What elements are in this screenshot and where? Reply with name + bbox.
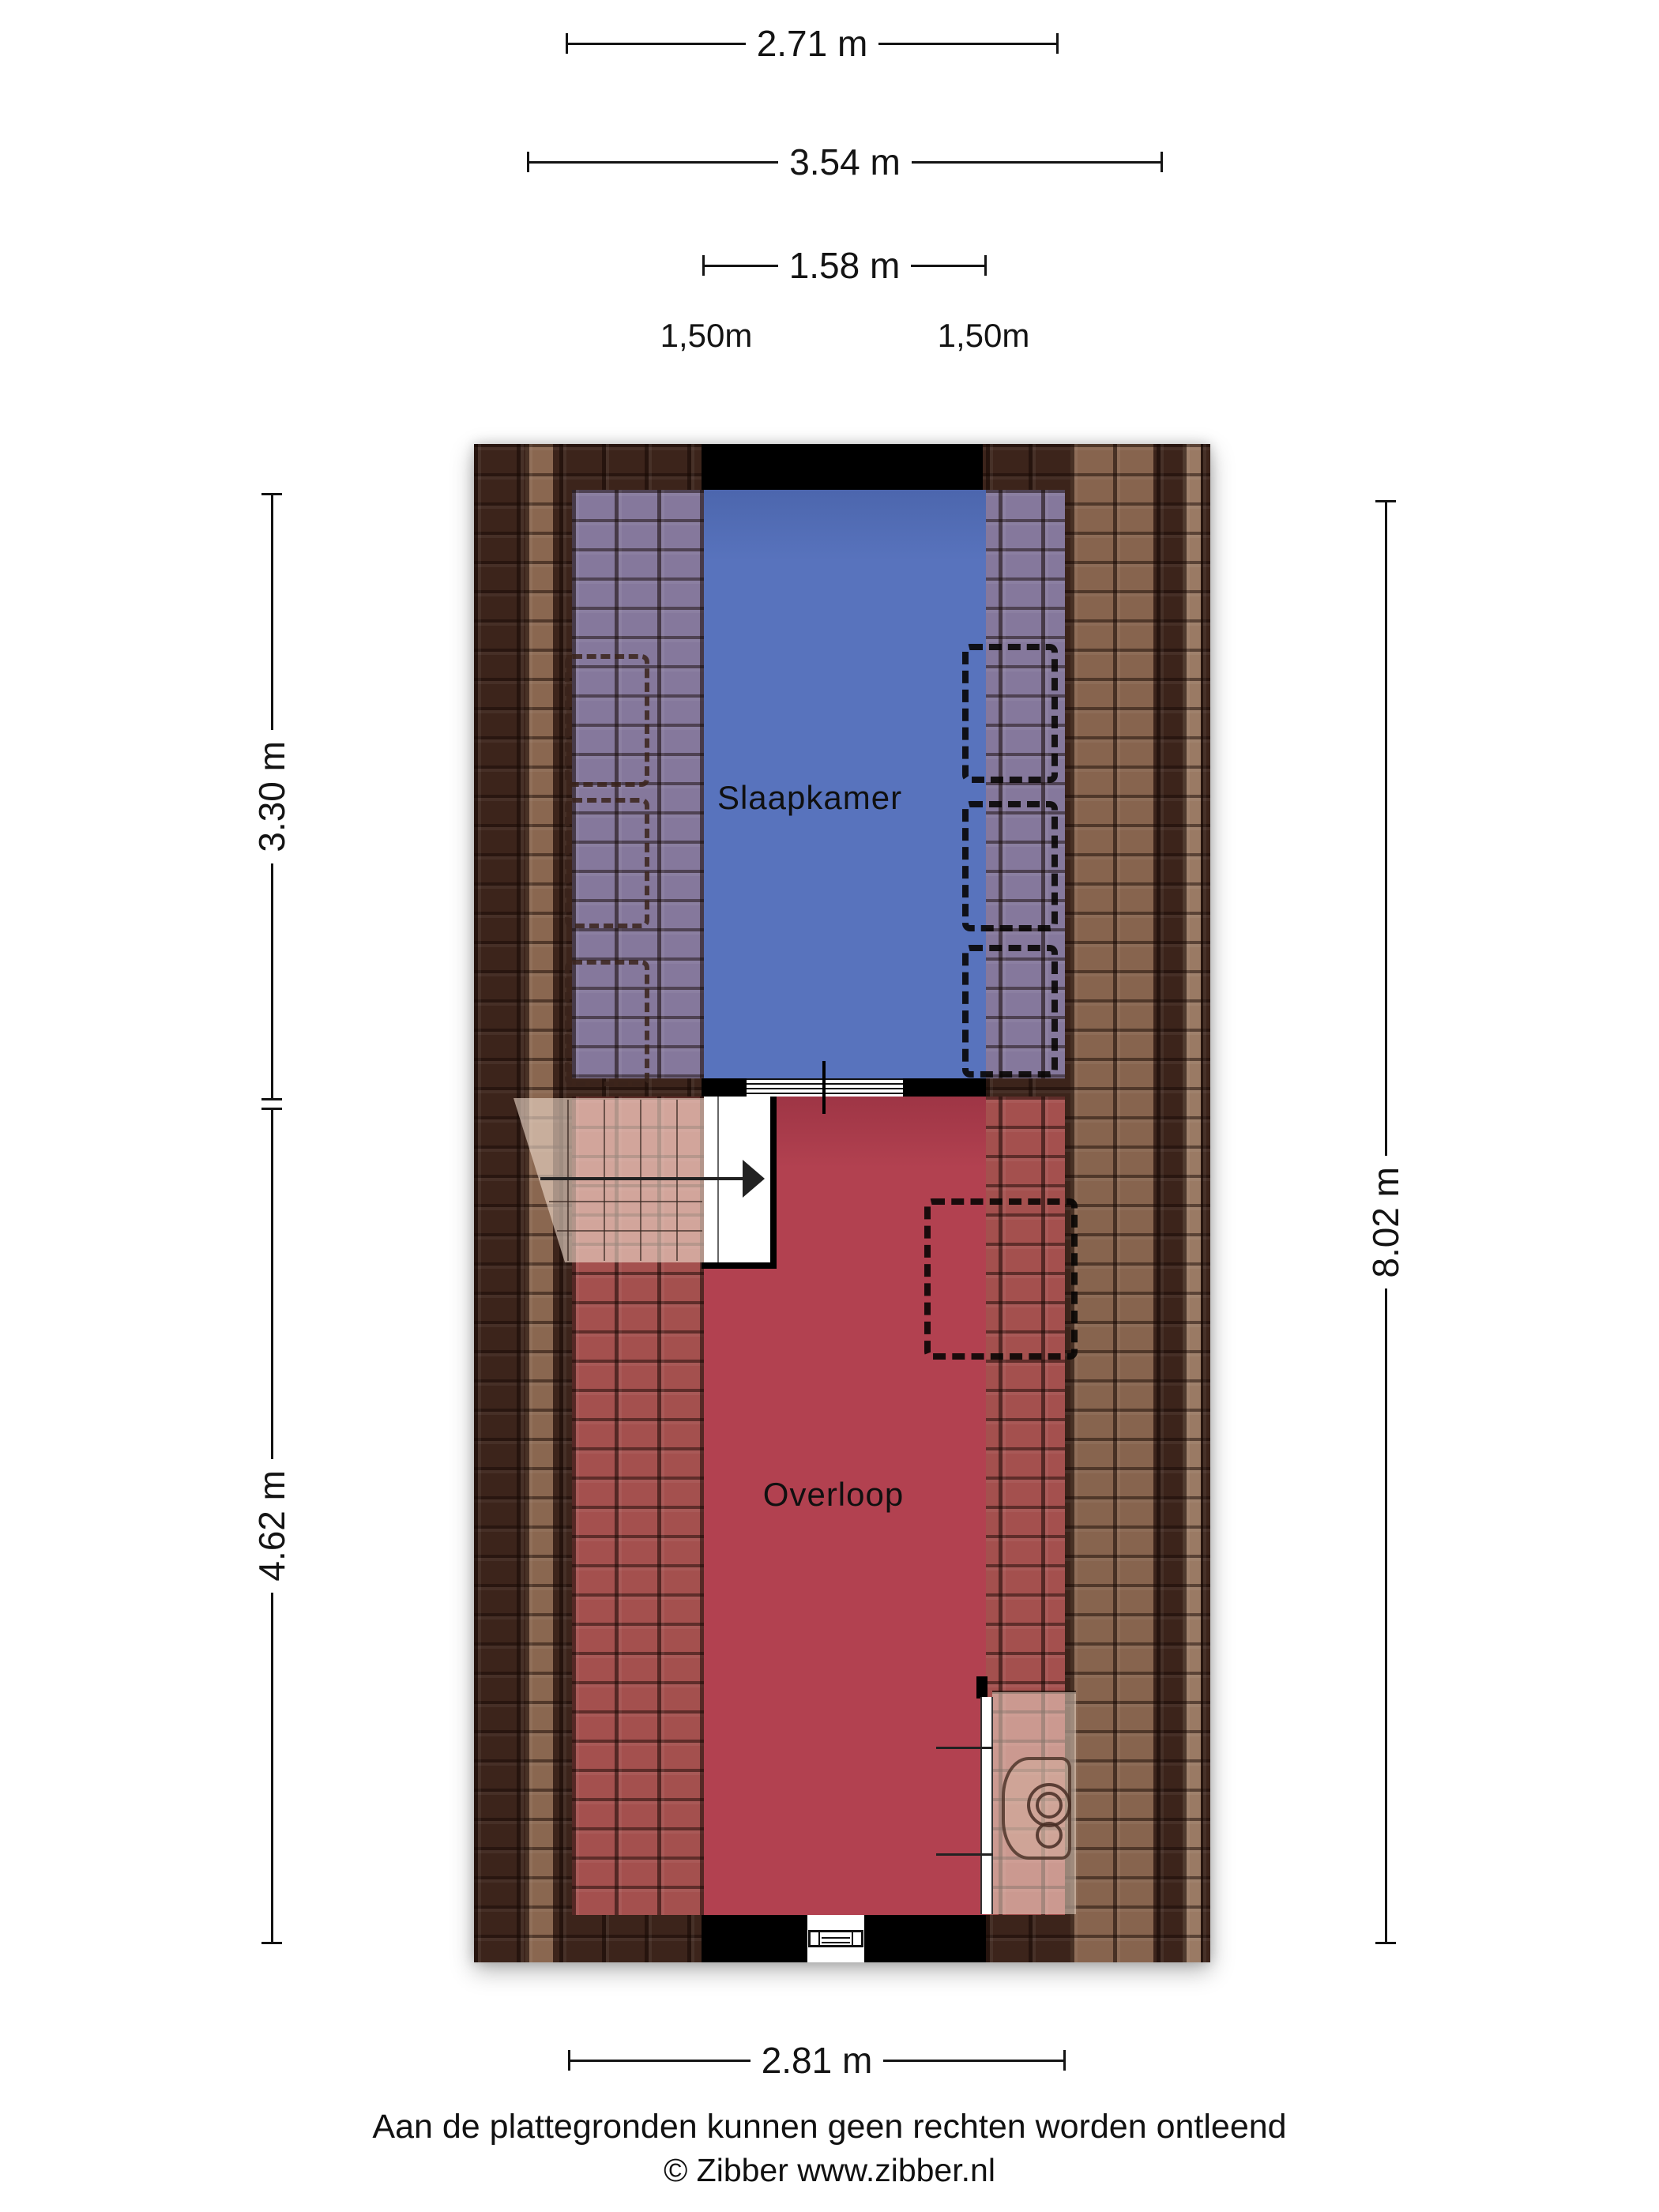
dimension-line xyxy=(1385,1288,1387,1942)
dimension-line xyxy=(568,43,746,45)
dimension-bottom-281: 2.81 m xyxy=(568,2041,1066,2079)
alcove-door-tick xyxy=(936,1853,993,1856)
dimension-label: 3.54 m xyxy=(778,144,912,180)
stair-tread-line xyxy=(567,1100,569,1261)
stair-direction-arrow-icon xyxy=(743,1160,765,1198)
dimension-line xyxy=(271,1593,273,1942)
window-mullion xyxy=(852,1932,853,1945)
window-mullion xyxy=(818,1932,820,1945)
toilet-flush-small xyxy=(1036,1822,1063,1849)
stair-tread-line xyxy=(640,1100,641,1261)
dimension-line xyxy=(878,43,1056,45)
dimension-tick xyxy=(984,255,987,276)
footer-copyright: © Zibber www.zibber.nl xyxy=(0,2152,1659,2189)
floorplan-drawing: Slaapkamer Overloop xyxy=(474,444,1210,1962)
dimension-tick xyxy=(1063,2050,1066,2071)
dimension-tick xyxy=(1056,33,1059,54)
floorplan-page: 2.71 m 3.54 m 1.58 m 1,50m 1,50m 3.30 m … xyxy=(0,0,1659,2212)
dimension-line xyxy=(1385,502,1387,1156)
dimension-tick xyxy=(1161,152,1163,172)
wall-top xyxy=(702,444,983,490)
room-label-overloop: Overloop xyxy=(763,1476,904,1514)
alcove-door-symbol xyxy=(980,1697,993,1914)
dimension-label: 3.30 m xyxy=(254,730,290,863)
wardrobe-outline xyxy=(565,654,649,787)
dimension-line xyxy=(912,161,1161,164)
height-marker-150-left: 1,50m xyxy=(660,317,753,355)
wardrobe-outline xyxy=(962,945,1058,1078)
dimension-left-462: 4.62 m xyxy=(251,1108,292,1944)
alcove-door-tick xyxy=(936,1747,993,1749)
wardrobe-outline xyxy=(565,798,649,928)
dimension-label: 1.58 m xyxy=(778,247,912,284)
dimension-label: 2.81 m xyxy=(750,2042,884,2078)
dimension-line xyxy=(271,1110,273,1459)
height-marker-150-right: 1,50m xyxy=(938,317,1030,355)
dimension-tick xyxy=(261,1098,282,1100)
wardrobe-outline xyxy=(962,801,1058,931)
room-label-slaapkamer: Slaapkamer xyxy=(717,779,902,817)
dimension-line xyxy=(271,863,273,1098)
stair-arrow-line xyxy=(540,1177,743,1180)
wardrobe-outline xyxy=(962,644,1058,783)
window-symbol xyxy=(808,1930,863,1947)
dimension-top-354: 3.54 m xyxy=(527,143,1163,181)
stair-bottom-wall xyxy=(702,1262,777,1269)
dimension-right-802: 8.02 m xyxy=(1365,500,1406,1944)
footer-disclaimer: Aan de plattegronden kunnen geen rechten… xyxy=(0,2108,1659,2146)
dimension-top-271: 2.71 m xyxy=(566,24,1059,62)
dimension-label: 2.71 m xyxy=(746,25,879,62)
dimension-left-330: 3.30 m xyxy=(251,493,292,1100)
alcove-wall-corner xyxy=(976,1676,987,1698)
dimension-line xyxy=(911,265,984,267)
stair-tread-line xyxy=(676,1100,678,1261)
window-pane-line xyxy=(822,1942,850,1943)
dimension-tick xyxy=(1375,1942,1396,1944)
door-center-line xyxy=(822,1061,826,1114)
dimension-label: 4.62 m xyxy=(254,1459,290,1593)
stair-tread-line xyxy=(604,1100,605,1261)
wardrobe-outline xyxy=(565,960,649,1086)
storage-outline xyxy=(924,1198,1078,1360)
dimension-line xyxy=(529,161,778,164)
dimension-line xyxy=(705,265,778,267)
toilet-flush-inner xyxy=(1036,1792,1063,1819)
stair-tread-line xyxy=(557,1230,702,1232)
dimension-line xyxy=(883,2060,1063,2062)
dimension-top-158: 1.58 m xyxy=(702,246,987,284)
roof-edge-strip-right xyxy=(1183,444,1201,1962)
dimension-label: 8.02 m xyxy=(1367,1156,1404,1289)
roof-ridge-strip-right xyxy=(1070,444,1153,1962)
dimension-tick xyxy=(261,1942,282,1944)
stair-tread-line xyxy=(549,1201,702,1202)
dimension-line xyxy=(271,495,273,730)
dimension-line xyxy=(570,2060,750,2062)
window-pane-line xyxy=(822,1937,850,1939)
